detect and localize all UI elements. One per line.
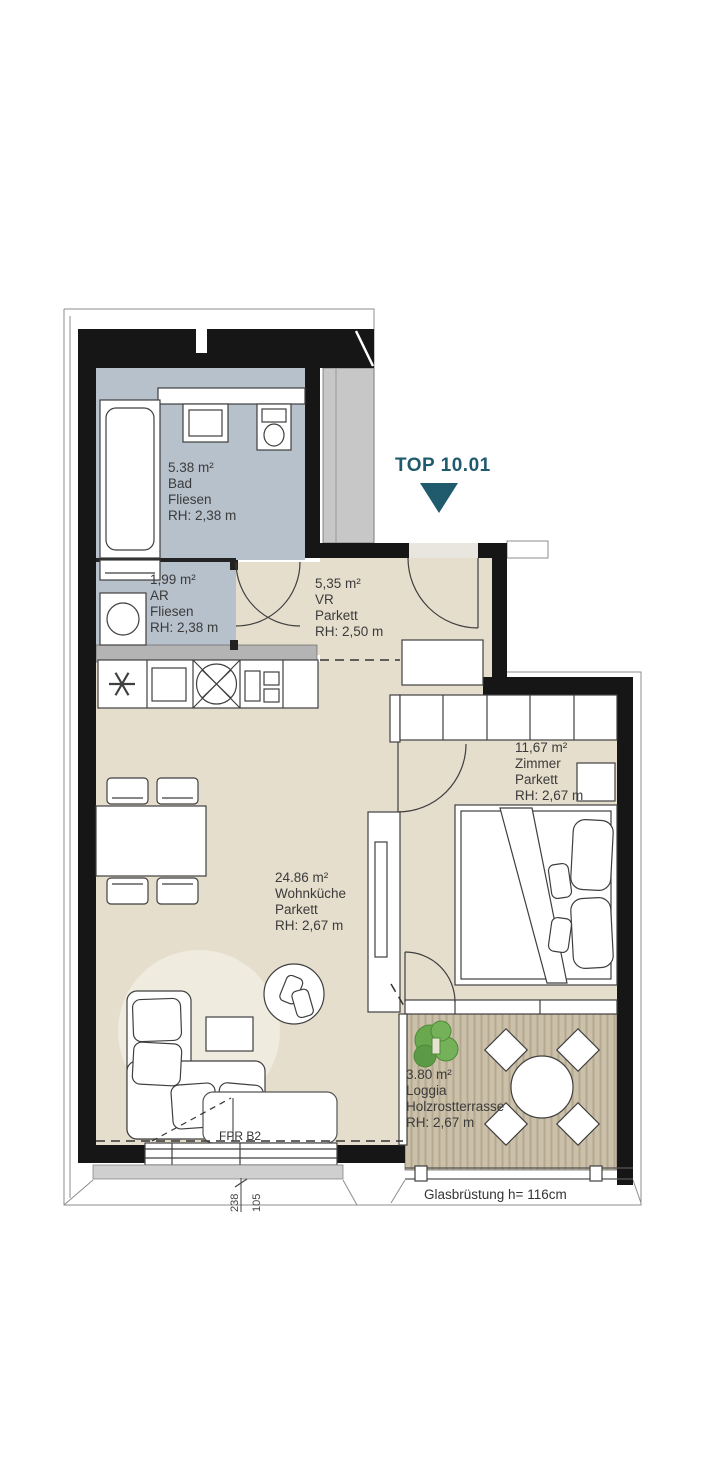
zimmer-area-label: 11,67 m² <box>515 740 568 755</box>
pocket-wall <box>368 812 400 1012</box>
wall-vr-east <box>492 558 507 677</box>
bath-counter <box>158 388 305 404</box>
bathtub <box>100 400 160 558</box>
window-sill <box>93 1165 343 1179</box>
chair <box>107 778 148 804</box>
dimension-238: 238 <box>229 1194 241 1212</box>
vr-rh-label: RH: 2,50 m <box>315 624 383 639</box>
vr-area-label: 5,35 m² <box>315 576 361 591</box>
ar-floor-label: Fliesen <box>150 604 194 619</box>
zimmer-rh-label: RH: 2,67 m <box>515 788 583 803</box>
ar-name-label: AR <box>150 588 169 603</box>
bad-name-label: Bad <box>168 476 192 491</box>
vr-floor-label: Parkett <box>315 608 358 623</box>
wall-bottom-mid <box>337 1145 405 1163</box>
wall-bad-east <box>305 368 320 558</box>
vr-floor-west <box>236 562 320 655</box>
wall-notch <box>196 329 207 353</box>
sofa-pillow <box>132 998 181 1042</box>
vr-closet <box>402 640 483 685</box>
bed-cushion <box>548 863 573 899</box>
loggia-name-label: Loggia <box>406 1083 447 1098</box>
shaft <box>323 368 374 543</box>
wall-left <box>78 329 96 1163</box>
wall-bottom-left <box>78 1145 145 1163</box>
loggia-floor-label: Holzrostterrasse <box>406 1099 504 1114</box>
wall-stub <box>390 695 400 742</box>
chair <box>157 778 198 804</box>
bad-rh-label: RH: 2,38 m <box>168 508 236 523</box>
bed <box>455 805 617 985</box>
chair <box>107 878 148 904</box>
sofa-pillow <box>132 1042 182 1086</box>
balustrade-post <box>590 1166 602 1181</box>
wohnkueche-floor-label: Parkett <box>275 902 318 917</box>
wohnkueche-name-label: Wohnküche <box>275 886 346 901</box>
bad-floor-label: Fliesen <box>168 492 212 507</box>
wohnkueche-rh-label: RH: 2,67 m <box>275 918 343 933</box>
zimmer-floor-label: Parkett <box>515 772 558 787</box>
wohnkueche-area-label: 24.86 m² <box>275 870 329 885</box>
unit-label: TOP 10.01 <box>395 455 491 476</box>
zimmer-name-label: Zimmer <box>515 756 561 771</box>
loggia-area-label: 3.80 m² <box>406 1067 452 1082</box>
bad-area-label: 5.38 m² <box>168 460 214 475</box>
ar-rh-label: RH: 2,38 m <box>150 620 218 635</box>
wardrobe <box>400 695 617 740</box>
vr-name-label: VR <box>315 592 334 607</box>
ar-area-label: 1,99 m² <box>150 572 196 587</box>
door-post-bottom <box>230 640 238 650</box>
coffee-table <box>206 1017 253 1051</box>
bed-pillow <box>570 897 614 969</box>
loggia-table <box>511 1056 573 1118</box>
wall-top <box>81 329 374 368</box>
armchair-pouf <box>264 964 324 1024</box>
balustrade-note: Glasbrüstung h= 116cm <box>424 1187 567 1202</box>
floor-plan: 5.38 m² Bad Fliesen RH: 2,38 m 1,99 m² A… <box>0 0 704 1472</box>
table <box>96 806 206 876</box>
chair <box>157 878 198 904</box>
bed-pillow <box>570 819 614 891</box>
loggia-rh-label: RH: 2,67 m <box>406 1115 474 1130</box>
dimension-105: 105 <box>251 1194 263 1212</box>
bed-cushion <box>548 917 573 953</box>
balustrade-post <box>415 1166 427 1181</box>
wall-right <box>617 695 633 1185</box>
wall-zimmer-north <box>483 677 633 695</box>
entry-threshold <box>409 543 478 558</box>
